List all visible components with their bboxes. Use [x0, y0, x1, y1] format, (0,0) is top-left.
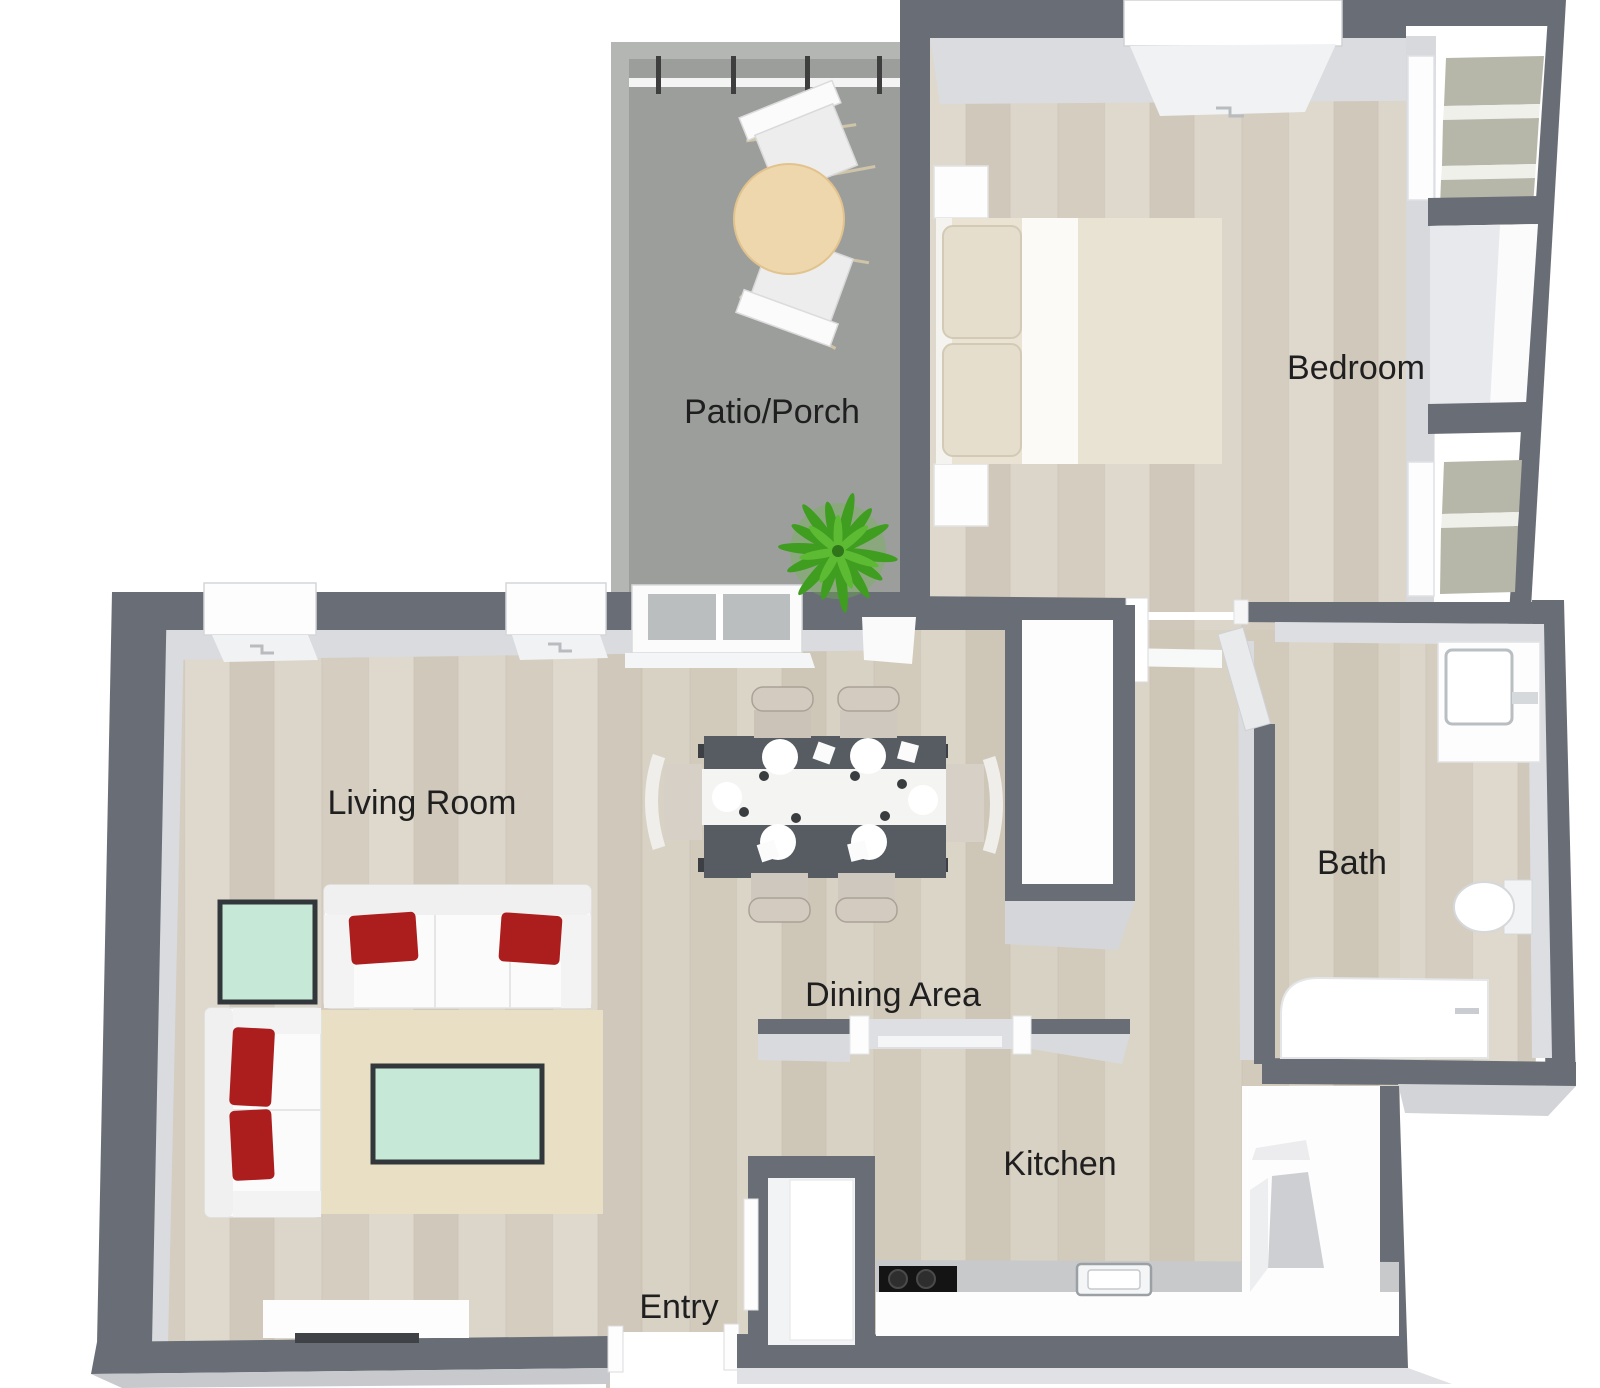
- svg-text:Bedroom: Bedroom: [1287, 349, 1425, 387]
- svg-text:Entry: Entry: [639, 1288, 718, 1326]
- svg-text:Kitchen: Kitchen: [1003, 1145, 1116, 1183]
- svg-text:Dining Area: Dining Area: [805, 976, 981, 1014]
- svg-text:Patio/Porch: Patio/Porch: [684, 393, 860, 431]
- svg-text:Bath: Bath: [1317, 844, 1387, 882]
- svg-text:Living Room: Living Room: [328, 784, 517, 822]
